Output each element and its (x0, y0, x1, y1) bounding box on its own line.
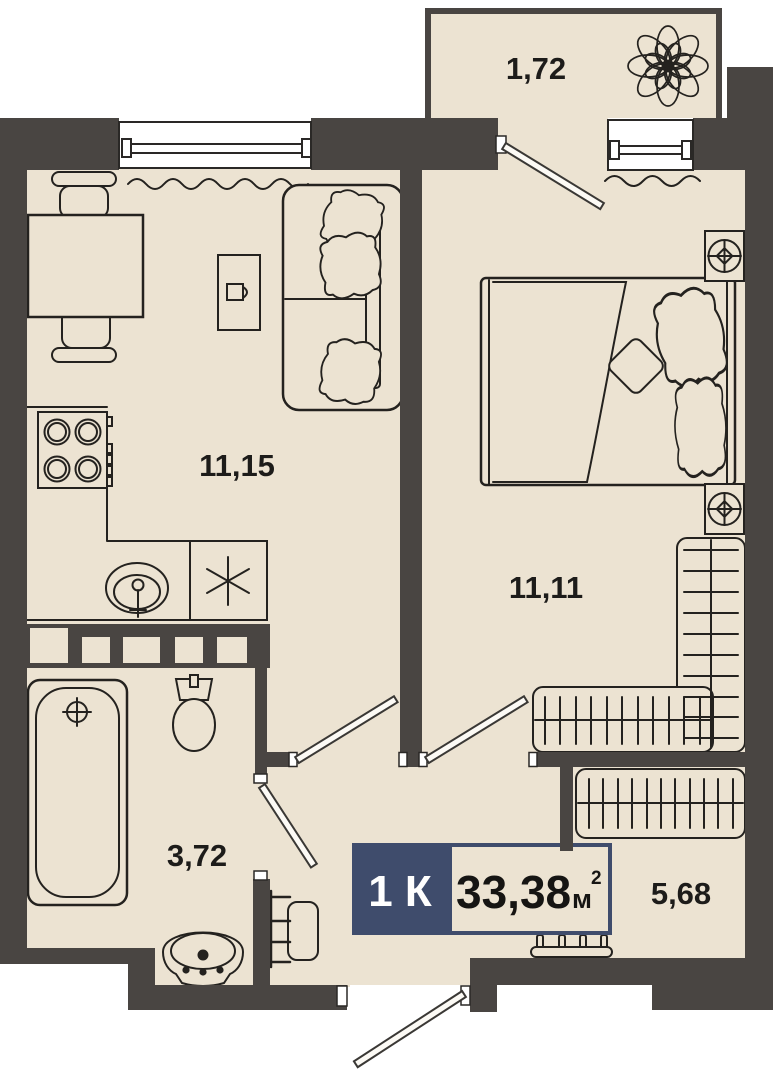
window-icon (119, 122, 311, 168)
toilet-icon (173, 675, 215, 751)
stove-icon (38, 412, 112, 488)
room-area-label: 5,68 (651, 876, 711, 911)
room-area-label: 1,72 (506, 51, 566, 86)
total-area-unit: м (572, 884, 592, 914)
window-icon (608, 120, 693, 170)
total-area-value: 33,38 (456, 866, 571, 918)
sofa-icon (283, 185, 403, 410)
floor-plan: 1 К 33,38 м 2 (0, 0, 773, 1080)
balcony-wall (425, 8, 722, 14)
coffee-table-icon (218, 255, 260, 330)
fridge-icon (190, 541, 267, 620)
entrance-door-leaf (354, 991, 466, 1067)
room-area-label: 3,72 (167, 838, 227, 873)
total-area-badge: 1 К 33,38 м 2 (352, 843, 610, 935)
room-area-label: 11,15 (199, 448, 275, 483)
bed-icon (481, 278, 735, 485)
hallway-closet-icon (576, 769, 745, 838)
apartment-type-label: 1 К (368, 867, 432, 916)
nightstand-lamp-icon (705, 231, 744, 281)
floor-plan-svg: 1 К 33,38 м 2 (0, 0, 773, 1080)
bathtub-icon (28, 680, 127, 905)
nightstand-lamp-icon (705, 484, 744, 534)
balcony-wall (425, 8, 431, 120)
dining-table-icon (28, 215, 143, 317)
chair-icon (52, 172, 116, 218)
wall-stub (560, 767, 573, 851)
balcony-wall (716, 8, 722, 120)
room-area-label: 11,11 (509, 570, 583, 605)
total-area-sup: 2 (591, 868, 602, 889)
